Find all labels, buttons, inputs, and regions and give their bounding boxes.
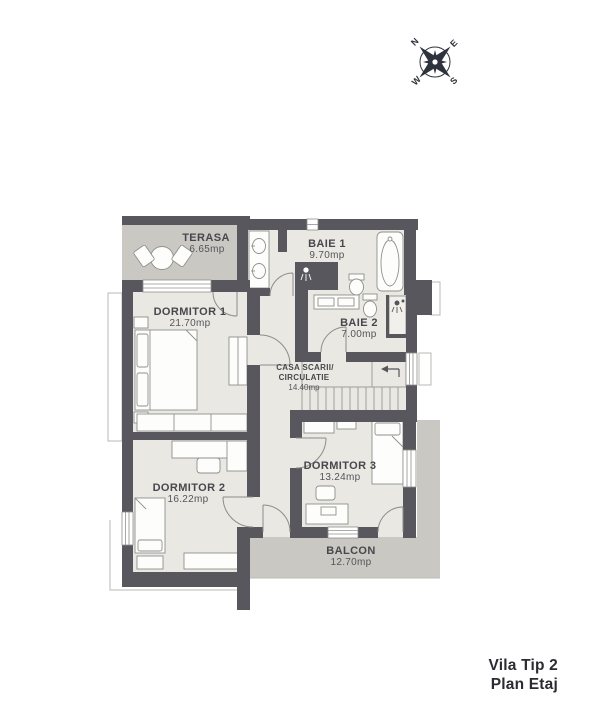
- room-area-dormitor1: 21.70mp: [169, 318, 210, 329]
- room-area-baie2: 7.00mp: [341, 329, 376, 340]
- bed-dormitor3: [372, 420, 403, 484]
- toilet-baie1: [349, 274, 364, 295]
- window-sill-right-top: [431, 282, 440, 315]
- room-label-dormitor3: DORMITOR 3: [304, 460, 377, 472]
- plan-title-line2: Plan Etaj: [491, 676, 558, 693]
- nightstand: [134, 317, 148, 328]
- room-label-casa-scarii-1: CASA SCARII/: [276, 363, 334, 372]
- room-label-casa-scarii-2: CIRCULATIE: [279, 373, 330, 382]
- chair: [316, 486, 335, 500]
- window-dormitor3-bottom: [328, 527, 358, 538]
- room-label-terasa: TERASA: [182, 232, 230, 244]
- bathtub: [377, 232, 403, 291]
- room-label-balcon: BALCON: [326, 545, 375, 557]
- room-area-terasa: 6.65mp: [189, 244, 224, 255]
- window-stair: [406, 353, 417, 385]
- room-label-dormitor2: DORMITOR 2: [153, 482, 226, 494]
- window-sill-left: [108, 293, 122, 441]
- window-dormitor2-left: [122, 512, 133, 545]
- dresser: [184, 553, 238, 569]
- room-area-baie1: 9.70mp: [309, 250, 344, 261]
- wardrobe-band: [137, 414, 247, 431]
- plan-title: Vila Tip 2 Plan Etaj: [489, 657, 559, 693]
- chair: [197, 458, 220, 473]
- vanity-double-sink: [249, 231, 269, 288]
- bed-dormitor2: [135, 498, 165, 553]
- nightstand: [137, 556, 163, 569]
- vanity-baie2: [314, 295, 359, 309]
- bed-dormitor1: [135, 330, 197, 410]
- balcon-side-floor: [417, 420, 440, 537]
- shower-cabin-baie1: [298, 262, 338, 290]
- floor-plan-page: TERASA 6.65mp BAIE 1 9.70mp DORMITOR 1 2…: [0, 0, 611, 720]
- window-dormitor3-right: [403, 450, 416, 487]
- room-area-dormitor2: 16.22mp: [167, 494, 208, 505]
- window-terasa: [143, 280, 211, 292]
- room-label-dormitor1: DORMITOR 1: [154, 306, 227, 318]
- terasa-table-and-chairs: [133, 245, 193, 270]
- toilet-baie2: [363, 294, 377, 317]
- compass-s: S: [448, 75, 459, 86]
- wardrobe-dormitor1: [229, 337, 247, 385]
- plan-title-line1: Vila Tip 2: [489, 657, 559, 674]
- floor-plan-svg: TERASA 6.65mp BAIE 1 9.70mp DORMITOR 1 2…: [0, 0, 611, 720]
- window-top: [307, 219, 318, 230]
- compass-rose-icon: N E S W: [390, 17, 479, 106]
- room-label-baie2: BAIE 2: [340, 317, 378, 329]
- room-area-casa-scarii: 14.40mp: [288, 383, 320, 392]
- room-area-dormitor3: 13.24mp: [319, 472, 360, 483]
- room-label-baie1: BAIE 1: [308, 238, 346, 250]
- compass-n: N: [409, 36, 421, 48]
- room-area-balcon: 12.70mp: [330, 557, 371, 568]
- window-sill-right-mid: [419, 353, 431, 385]
